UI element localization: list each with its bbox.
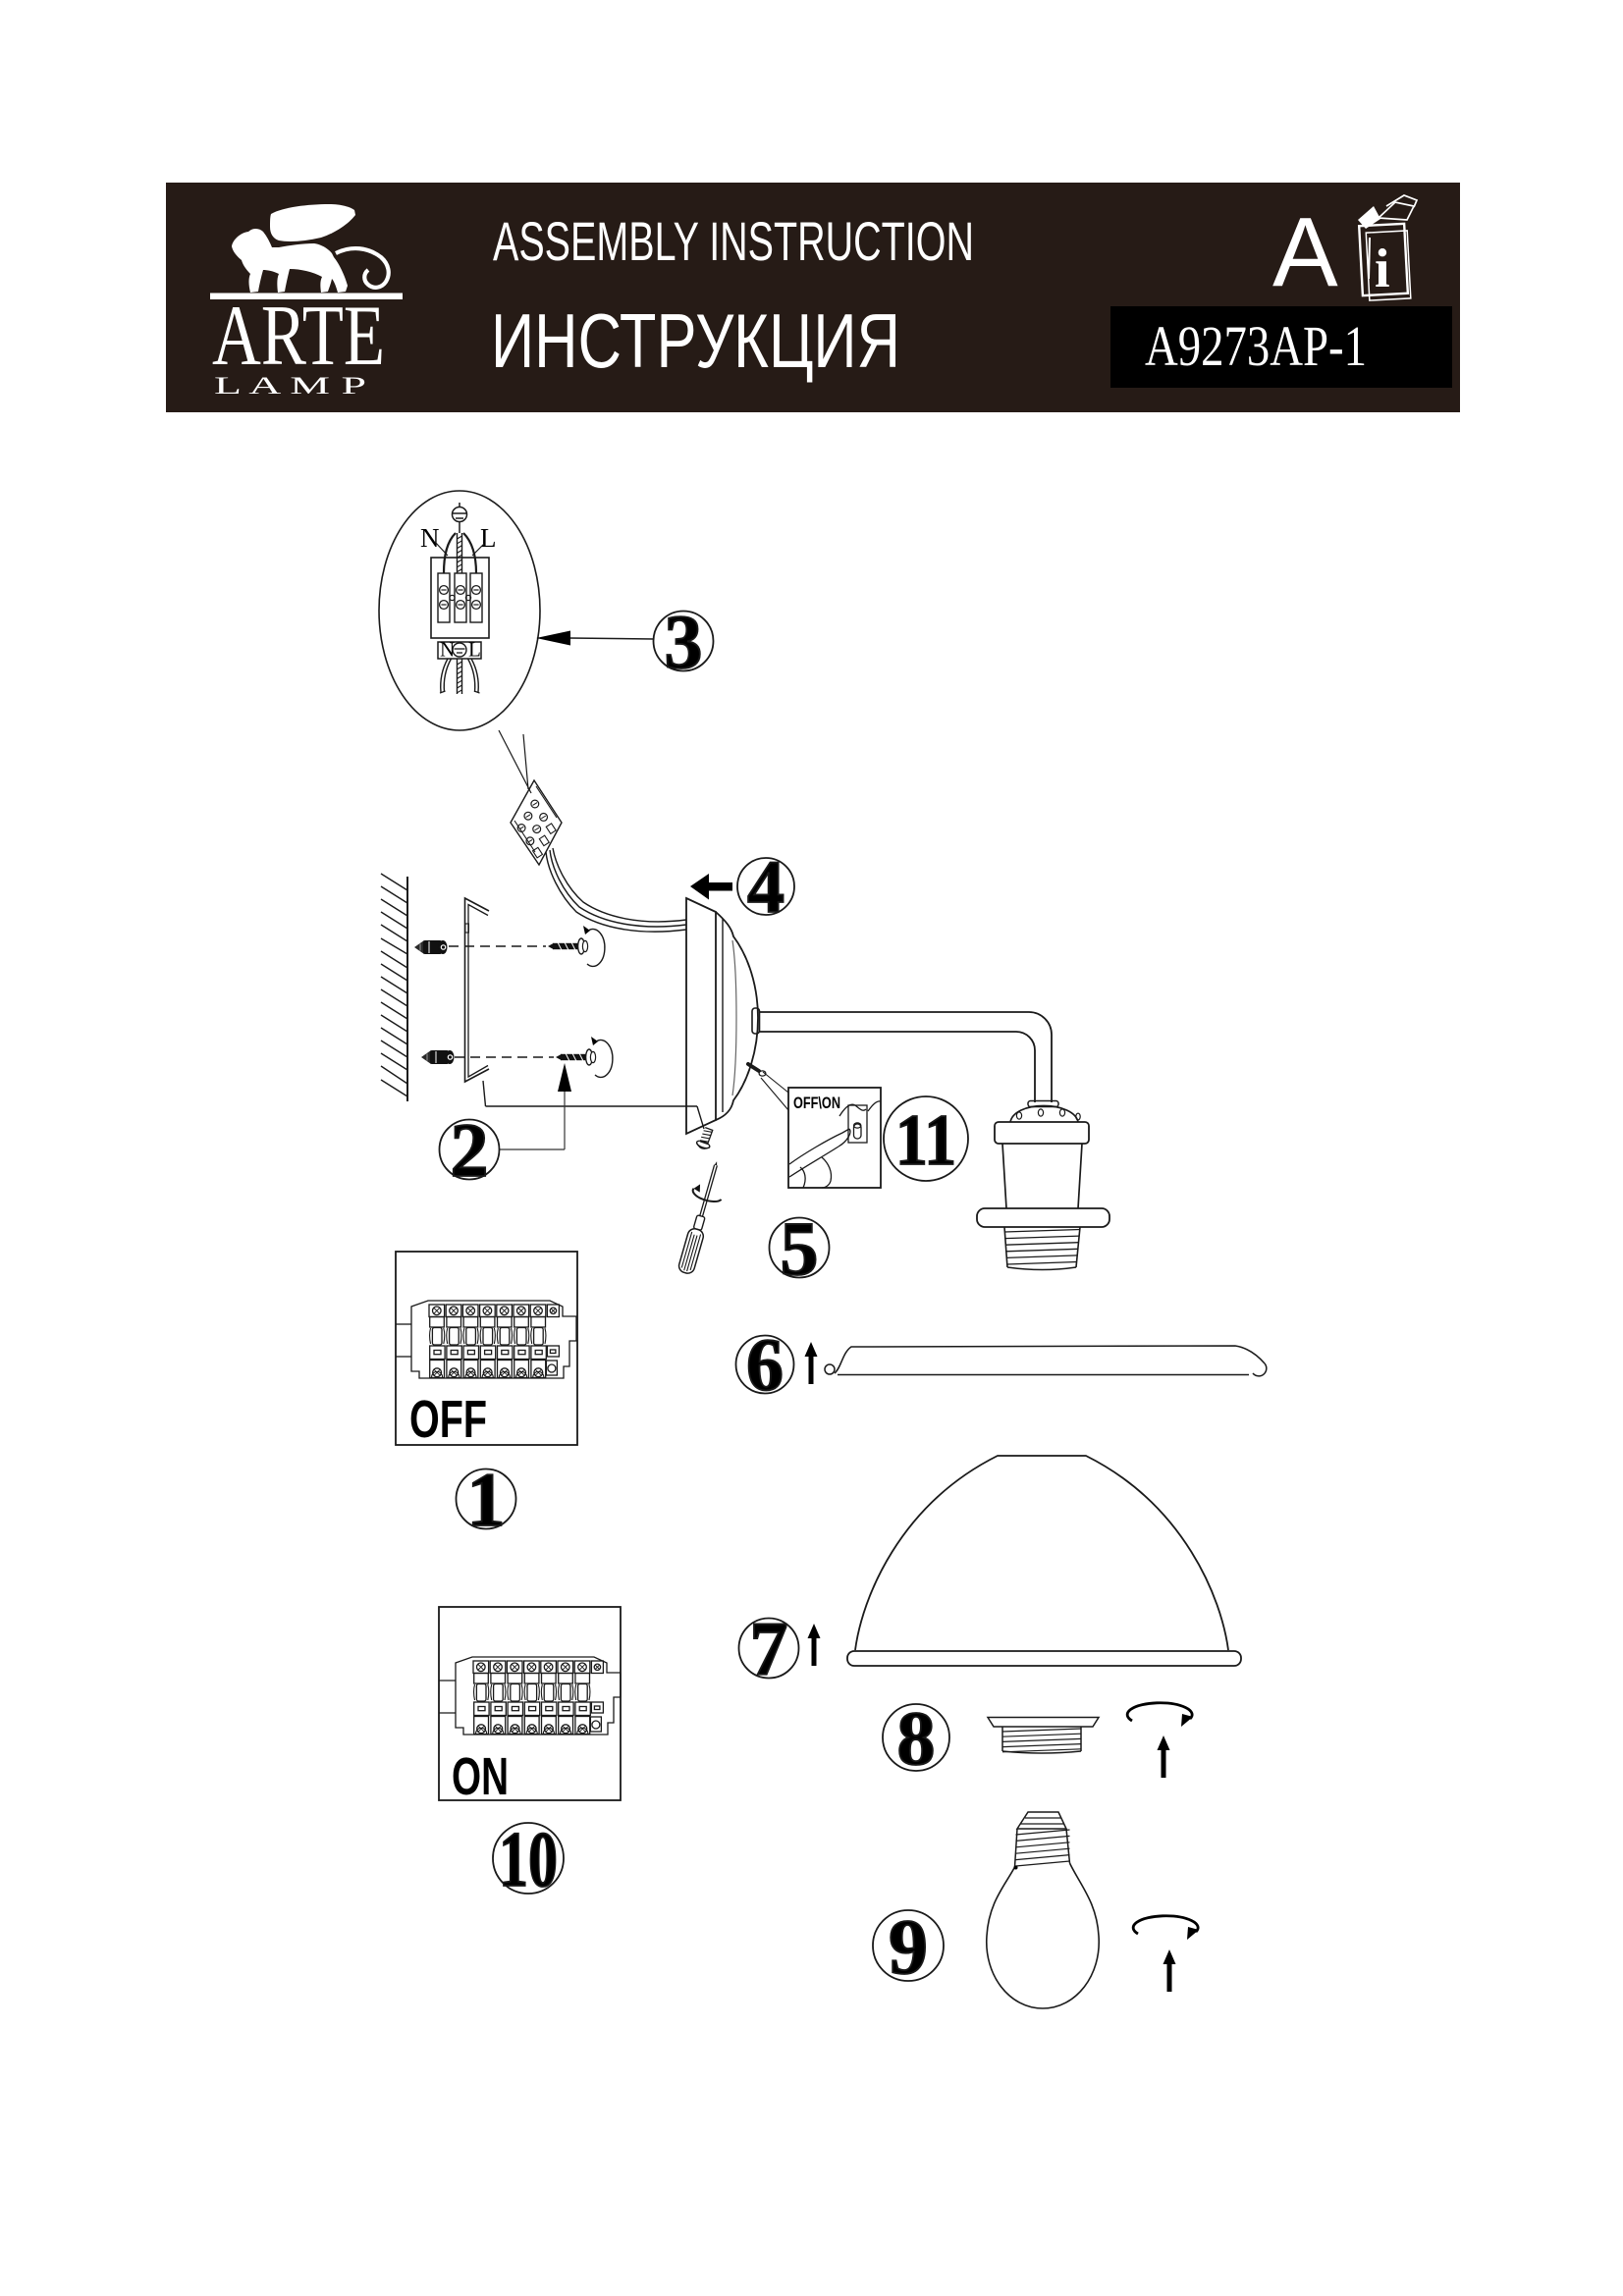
svg-text:L: L [468, 638, 481, 662]
svg-text:6: 6 [746, 1324, 784, 1407]
svg-text:N: N [420, 523, 440, 553]
svg-text:OFF\ON: OFF\ON [793, 1094, 840, 1112]
svg-text:2: 2 [451, 1107, 489, 1193]
svg-text:9: 9 [889, 1904, 928, 1991]
svg-text:OFF: OFF [409, 1390, 487, 1449]
svg-text:A: A [1272, 197, 1338, 307]
svg-text:ИНСТРУКЦИЯ: ИНСТРУКЦИЯ [491, 297, 900, 384]
svg-text:11: 11 [895, 1100, 956, 1181]
svg-text:L: L [480, 523, 497, 553]
svg-text:i: i [1375, 239, 1390, 299]
svg-text:5: 5 [781, 1205, 819, 1291]
svg-text:1: 1 [467, 1457, 506, 1542]
svg-text:7: 7 [750, 1606, 788, 1691]
svg-text:L A M P: L A M P [214, 373, 366, 400]
svg-text:8: 8 [897, 1695, 936, 1781]
svg-text:ON: ON [452, 1747, 509, 1806]
svg-text:A9273AP-1: A9273AP-1 [1145, 314, 1367, 378]
svg-text:10: 10 [499, 1817, 558, 1903]
svg-text:ASSEMBLY INSTRUCTION: ASSEMBLY INSTRUCTION [493, 210, 974, 272]
svg-text:3: 3 [665, 599, 703, 684]
svg-text:4: 4 [747, 846, 784, 929]
svg-text:ARTE: ARTE [212, 289, 385, 384]
